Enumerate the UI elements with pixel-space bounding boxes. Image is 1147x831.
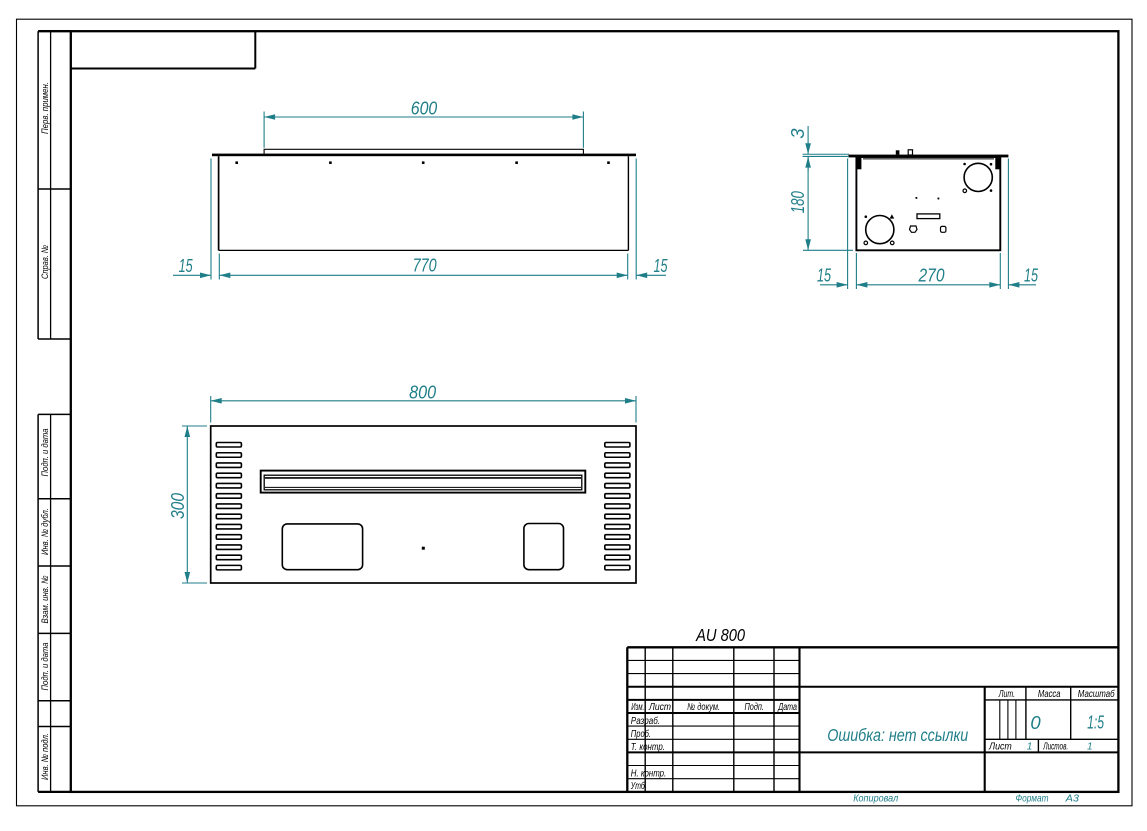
svg-text:15: 15	[1024, 265, 1038, 286]
svg-text:Копировал: Копировал	[853, 793, 898, 805]
svg-text:Лит.: Лит.	[998, 689, 1015, 700]
svg-text:15: 15	[179, 255, 193, 276]
svg-text:Масштаб: Масштаб	[1078, 688, 1115, 700]
svg-text:270: 270	[918, 265, 945, 286]
svg-text:3: 3	[787, 128, 808, 139]
svg-text:Утб.: Утб.	[630, 780, 647, 792]
svg-text:15: 15	[817, 265, 831, 286]
svg-text:Дата: Дата	[777, 702, 797, 713]
svg-text:Подп.: Подп.	[744, 702, 764, 713]
svg-text:№ докум.: № докум.	[687, 702, 720, 713]
svg-text:Разраб.: Разраб.	[631, 715, 660, 727]
svg-text:Формат: Формат	[1016, 793, 1049, 805]
svg-text:770: 770	[413, 255, 438, 276]
svg-text:0: 0	[1030, 712, 1041, 733]
svg-text:1: 1	[1087, 741, 1093, 752]
svg-text:Изм.: Изм.	[631, 702, 644, 713]
svg-text:А3: А3	[1065, 793, 1080, 805]
svg-text:1: 1	[1027, 741, 1033, 752]
svg-text:1:5: 1:5	[1087, 712, 1104, 733]
svg-text:Н. контр.: Н. контр.	[631, 768, 666, 779]
svg-text:Проб.: Проб.	[631, 728, 651, 740]
svg-text:Лист: Лист	[648, 702, 671, 713]
svg-text:180: 180	[787, 191, 808, 214]
svg-text:Т. контр.: Т. контр.	[631, 742, 665, 753]
svg-text:Подп. и дата: Подп. и дата	[40, 429, 51, 477]
svg-text:Перв. примен.: Перв. примен.	[40, 82, 51, 134]
svg-text:15: 15	[654, 255, 668, 276]
svg-text:Листов.: Листов.	[1043, 741, 1069, 752]
svg-text:600: 600	[411, 98, 438, 119]
svg-text:Справ. №: Справ. №	[40, 245, 51, 279]
svg-text:AU 800: AU 800	[695, 625, 745, 645]
svg-text:Лист: Лист	[988, 741, 1012, 752]
svg-text:Взам. инв. №: Взам. инв. №	[40, 576, 51, 624]
svg-text:Ошибка: нет ссылки: Ошибка: нет ссылки	[827, 725, 968, 745]
svg-text:800: 800	[409, 381, 437, 402]
svg-text:300: 300	[167, 492, 188, 519]
svg-text:Инв. № подл.: Инв. № подл.	[40, 733, 51, 780]
svg-text:Инв. № дубл.: Инв. № дубл.	[40, 508, 51, 555]
svg-text:Масса: Масса	[1038, 689, 1061, 700]
svg-text:Подп. и дата: Подп. и дата	[40, 643, 51, 691]
